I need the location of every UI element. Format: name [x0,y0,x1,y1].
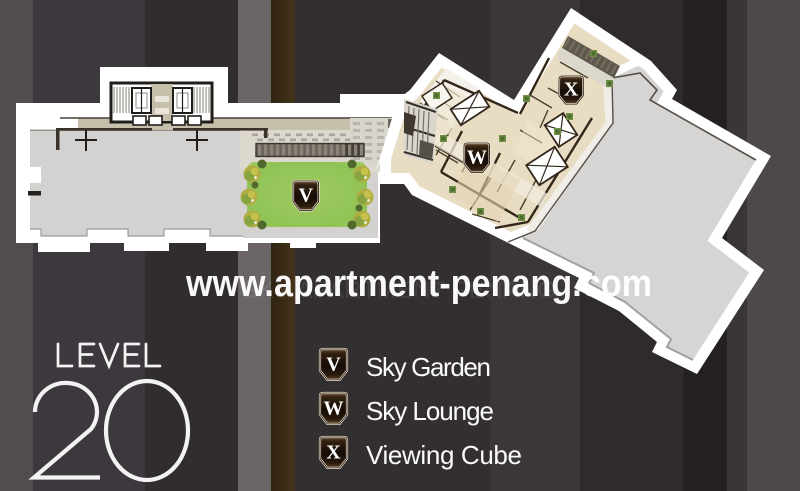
svg-text:www.apartment-penang.com: www.apartment-penang.com [185,261,652,304]
svg-text:V: V [326,354,341,376]
svg-text:V: V [299,185,314,207]
svg-text:X: X [326,442,341,464]
svg-text:X: X [564,79,579,101]
svg-text:Sky Lounge: Sky Lounge [366,396,494,426]
svg-text:Viewing Cube: Viewing Cube [366,440,522,470]
svg-text:W: W [324,398,344,420]
svg-text:W: W [467,147,487,169]
svg-text:Sky Garden: Sky Garden [366,352,491,382]
